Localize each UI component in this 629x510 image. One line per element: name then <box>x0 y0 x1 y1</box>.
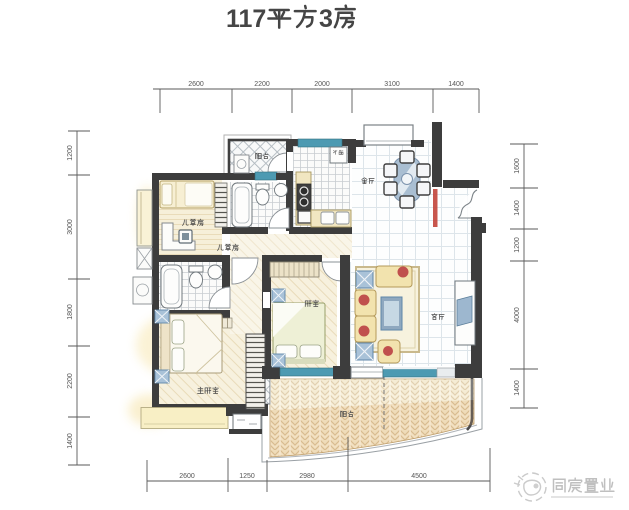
svg-text:2200: 2200 <box>67 373 74 389</box>
svg-text:1400: 1400 <box>514 380 521 396</box>
svg-text:1400: 1400 <box>448 81 464 88</box>
svg-text:1600: 1600 <box>514 158 521 174</box>
svg-text:1250: 1250 <box>239 473 255 480</box>
svg-text:2200: 2200 <box>254 81 270 88</box>
svg-text:3000: 3000 <box>67 219 74 235</box>
svg-text:1400: 1400 <box>514 200 521 216</box>
svg-text:1200: 1200 <box>67 145 74 161</box>
svg-text:4000: 4000 <box>514 307 521 323</box>
svg-text:3100: 3100 <box>384 81 400 88</box>
svg-text:1200: 1200 <box>514 237 521 253</box>
svg-text:2980: 2980 <box>299 473 315 480</box>
svg-text:1800: 1800 <box>67 304 74 320</box>
svg-text:117: 117 <box>226 5 266 33</box>
svg-text:1400: 1400 <box>67 433 74 449</box>
svg-text:4500: 4500 <box>411 473 427 480</box>
svg-text:2000: 2000 <box>314 81 330 88</box>
svg-text:2600: 2600 <box>188 81 204 88</box>
svg-text:2600: 2600 <box>179 473 195 480</box>
svg-text:3: 3 <box>319 5 333 33</box>
